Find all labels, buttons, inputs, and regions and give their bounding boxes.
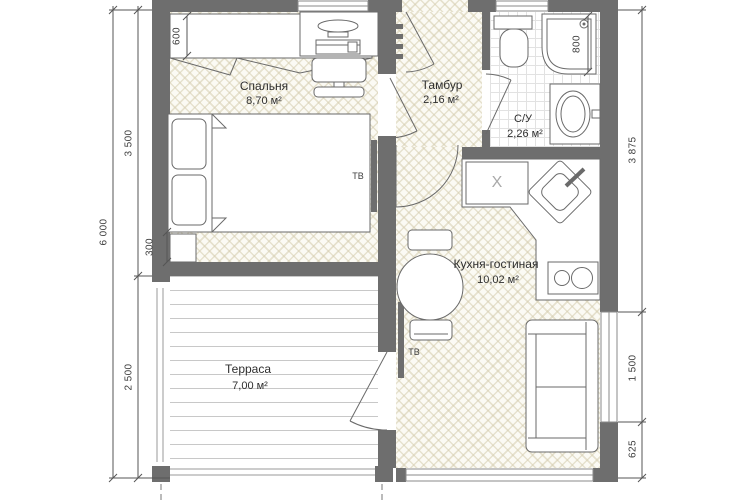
wall <box>378 276 396 352</box>
floor-plan: Спальня 8,70 м² Тамбур 2,16 м² С/У 2,26 … <box>0 0 753 502</box>
dim-right-lower: 625 <box>628 440 639 458</box>
tv-label-kitchen: ТВ <box>408 347 420 357</box>
room-area-bathroom: 2,26 м² <box>507 128 543 140</box>
wall <box>482 130 490 147</box>
wall <box>482 12 490 70</box>
tv-label-bedroom: ТВ <box>352 171 364 181</box>
room-area-kitchen: 10,02 м² <box>477 274 519 286</box>
wall <box>378 12 396 74</box>
bedroom-floor <box>170 12 378 262</box>
entrance-floor <box>402 0 468 12</box>
wall <box>593 468 618 482</box>
window-bedroom <box>298 1 368 11</box>
dim-left-upper: 3 500 <box>124 129 135 156</box>
wall <box>600 0 618 312</box>
wall <box>378 136 396 262</box>
room-area-vestibule: 2,16 м² <box>423 94 459 106</box>
wall <box>152 262 396 276</box>
terrace-floor <box>170 276 378 466</box>
room-label-bathroom: С/У <box>514 113 532 125</box>
room-label-vestibule: Тамбур <box>422 78 463 92</box>
dim-shower-width: 800 <box>572 35 583 53</box>
wall <box>462 147 618 159</box>
dim-left-lower: 2 500 <box>124 363 135 390</box>
wall <box>378 430 396 468</box>
bathroom-floor <box>490 12 600 147</box>
room-area-bedroom: 8,70 м² <box>246 95 282 107</box>
kitchen-floor <box>396 147 600 468</box>
dim-left-total: 6 000 <box>99 218 110 245</box>
wall <box>368 0 402 12</box>
room-area-terrace: 7,00 м² <box>232 380 268 392</box>
axis-marks <box>161 484 382 500</box>
dim-wardrobe-depth: 600 <box>172 27 183 45</box>
room-label-bedroom: Спальня <box>240 79 288 93</box>
dim-right-middle: 1 500 <box>628 354 639 381</box>
terrace-post <box>375 466 393 482</box>
window-bathroom <box>496 1 548 11</box>
wall <box>396 468 406 482</box>
wall <box>152 0 298 12</box>
window-living <box>601 312 617 422</box>
dim-right-upper: 3 875 <box>628 136 639 163</box>
room-label-kitchen: Кухня-гостиная <box>454 257 539 271</box>
appliance-mark: X <box>492 174 503 192</box>
wall <box>468 0 496 12</box>
dim-nightstand-width: 300 <box>145 238 156 256</box>
terrace-post <box>152 466 170 482</box>
window-kitchen-south <box>406 469 593 481</box>
room-label-terrace: Терраса <box>225 362 271 376</box>
